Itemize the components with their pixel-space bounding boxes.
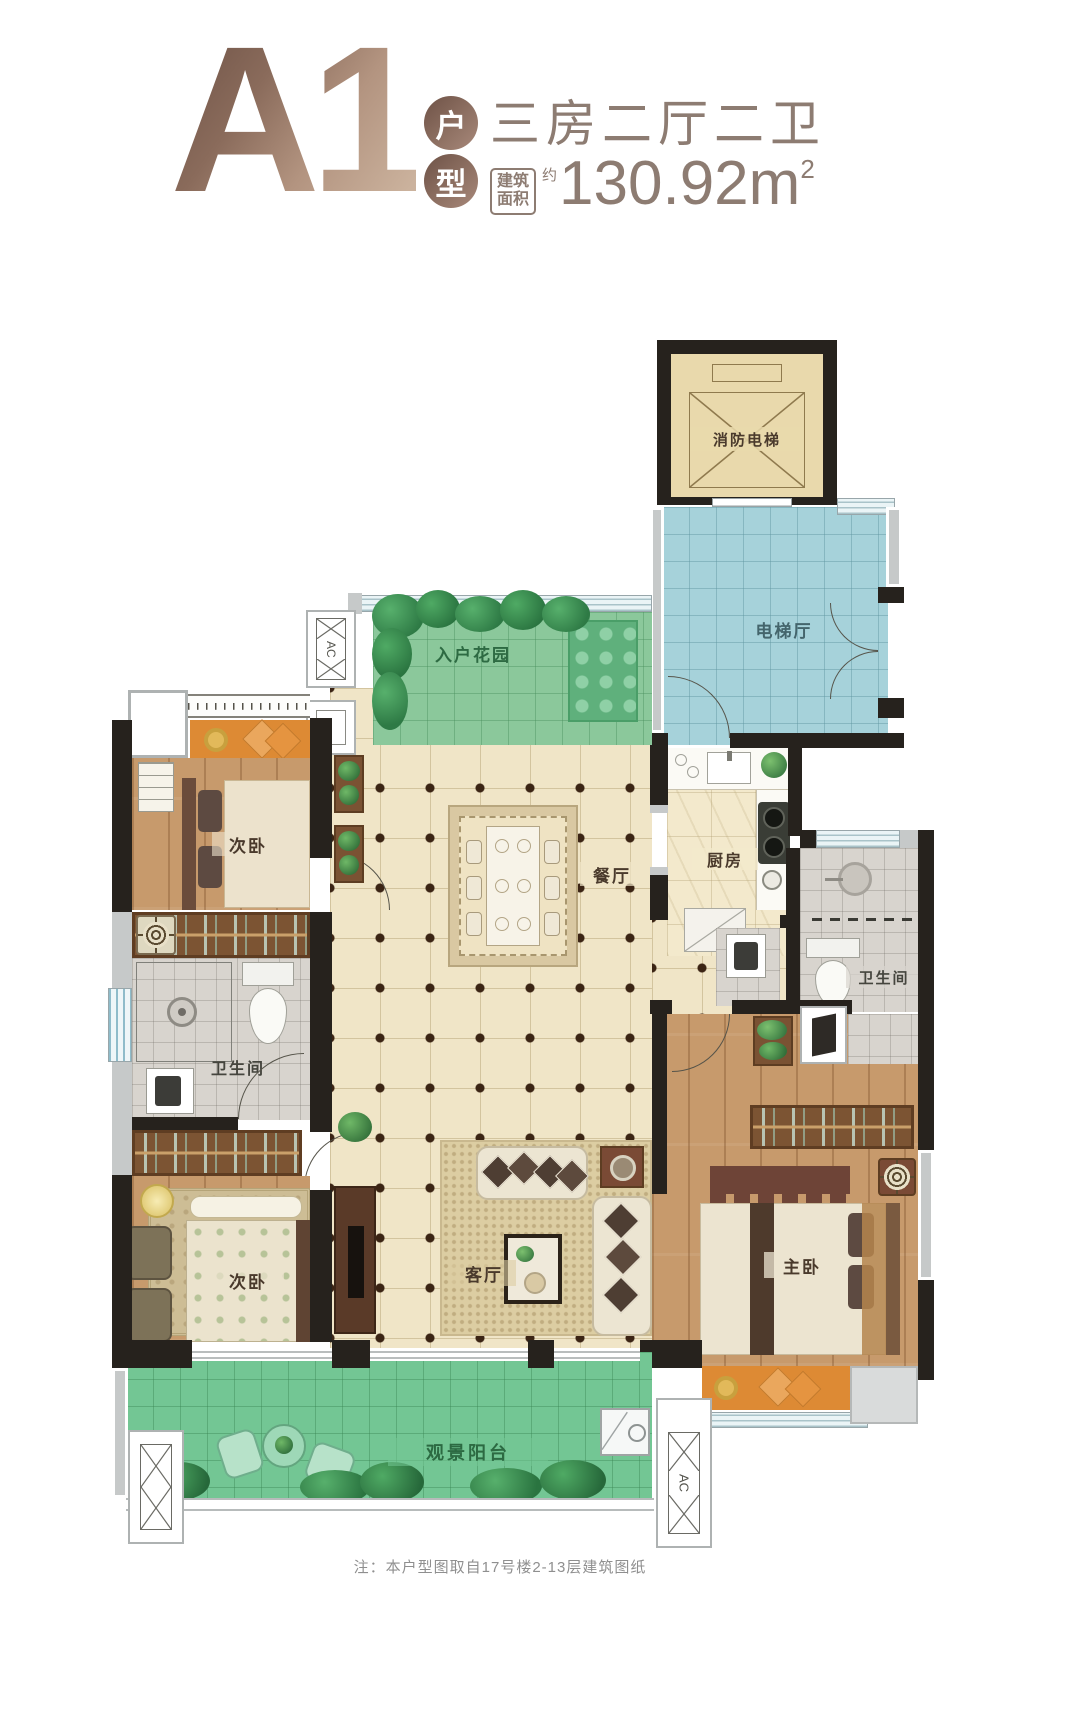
wall-segment <box>112 720 132 912</box>
garden-foliage <box>500 590 546 630</box>
corner-niche <box>128 690 188 758</box>
living-room-label: 客厅 <box>452 1260 516 1286</box>
dish-icon <box>687 766 699 778</box>
hall-west-wall <box>650 507 664 733</box>
dish-icon <box>675 754 687 766</box>
sofa-corner <box>592 1196 652 1336</box>
compass-decor-icon <box>136 915 176 955</box>
vanity <box>146 1068 194 1114</box>
garden-foliage <box>416 590 460 628</box>
planter <box>334 755 364 813</box>
dining-chair <box>466 840 482 864</box>
bed-headboard <box>296 1220 310 1342</box>
table-plant <box>516 1246 534 1262</box>
plate <box>495 879 509 893</box>
ac-x-icon <box>141 1487 171 1529</box>
plate <box>517 879 531 893</box>
wall-segment <box>310 912 332 1132</box>
plate <box>517 917 531 931</box>
wall-segment <box>112 1175 132 1343</box>
fire-elevator-shaft: 消防电梯 <box>689 392 805 488</box>
wall-segment <box>732 1000 788 1014</box>
wall-segment <box>788 748 802 836</box>
plate <box>495 839 509 853</box>
ac-x-icon <box>317 619 345 639</box>
kitchen-plant <box>761 752 787 778</box>
wall-segment <box>310 718 332 858</box>
sofa-pillow <box>481 1155 515 1189</box>
floor-lamp <box>140 1184 174 1218</box>
bay-round-cushion <box>204 728 228 752</box>
bed-runner <box>750 1203 774 1355</box>
kitchen-bowl <box>762 870 782 890</box>
plant <box>757 1020 787 1040</box>
hall-east-frame <box>886 507 902 587</box>
bathroom-right-label: 卫生间 <box>846 966 922 988</box>
ac-unit <box>140 1444 172 1530</box>
faucet-icon <box>727 751 732 761</box>
entry-garden-label: 入户花园 <box>408 640 538 666</box>
washing-machine <box>600 1408 650 1456</box>
wall-segment <box>786 848 800 1012</box>
plate <box>495 917 509 931</box>
wall-segment <box>800 830 816 848</box>
bed-bench-tufts <box>710 1194 850 1203</box>
bay-cushion <box>785 1371 822 1408</box>
shower-separator <box>812 918 912 921</box>
window-sill <box>554 1348 640 1361</box>
tray-icon <box>610 1155 636 1181</box>
plant <box>339 785 359 805</box>
ac-unit: AC <box>316 618 346 680</box>
master-bedroom-label: 主卧 <box>764 1252 840 1278</box>
sofa-pillow <box>603 1277 640 1314</box>
burner-icon <box>763 807 785 829</box>
side-table <box>600 1146 644 1188</box>
plant-rack <box>753 1016 793 1066</box>
footnote: 注：本户型图取自17号楼2-13层建筑图纸 <box>0 1556 1000 1577</box>
ac-unit: AC <box>668 1432 700 1534</box>
bed <box>700 1203 900 1355</box>
nightstand-decor-icon <box>878 1158 916 1196</box>
wall-frame <box>112 1062 132 1175</box>
ac-x-icon <box>317 659 345 679</box>
dining-chair <box>544 840 560 864</box>
door-leaf-icon <box>812 1013 836 1056</box>
balcony-label: 观景阳台 <box>388 1438 548 1466</box>
elevator-hall-label: 电梯厅 <box>724 616 844 642</box>
planter <box>334 825 364 883</box>
balcony-left-edge <box>112 1368 128 1498</box>
toilet <box>242 962 294 1050</box>
wall-segment <box>878 587 904 603</box>
dining-chair <box>466 912 482 936</box>
bed-headboard <box>886 1203 900 1355</box>
wall-frame <box>112 912 132 988</box>
wall-segment <box>918 830 934 1150</box>
door-jamb <box>650 805 668 813</box>
vanity <box>726 934 766 978</box>
fire-elevator-counterweight <box>712 364 782 382</box>
dining-chair <box>466 876 482 900</box>
wall-segment <box>650 875 668 920</box>
dining-table <box>486 826 540 946</box>
balcony-table <box>262 1424 306 1468</box>
wall-segment <box>650 1000 672 1014</box>
window-sill <box>370 1348 528 1361</box>
bedroom-top-label: 次卧 <box>212 832 284 856</box>
tv-screen <box>348 1226 364 1298</box>
window-band <box>108 988 132 1062</box>
plant <box>338 761 360 781</box>
dining-chair <box>544 876 560 900</box>
balcony-foliage <box>540 1460 606 1500</box>
ac-label: AC <box>325 641 337 658</box>
wardrobe <box>750 1105 914 1149</box>
door-jamb <box>650 867 668 875</box>
fire-elevator-label: 消防电梯 <box>690 427 804 451</box>
ac-x-icon <box>669 1495 699 1533</box>
fire-elevator: 消防电梯 <box>657 340 837 505</box>
dresser <box>138 762 174 812</box>
wall-segment <box>528 1340 554 1368</box>
sofa-pillow <box>555 1159 589 1193</box>
balcony-foliage <box>360 1462 424 1502</box>
wall-segment <box>112 1340 192 1368</box>
wall-segment <box>310 1190 332 1342</box>
toilet-tank <box>242 962 294 986</box>
shower-area <box>136 962 232 1062</box>
bay-window-seat <box>702 1366 850 1410</box>
bed-pillow-roll <box>190 1196 302 1218</box>
wall-frame <box>918 1150 934 1280</box>
balcony-railing <box>126 1498 654 1511</box>
armchair <box>126 1288 172 1342</box>
ac-x-icon <box>669 1433 699 1471</box>
exterior-slab <box>850 1366 918 1424</box>
plant <box>339 855 359 875</box>
garden-rug <box>568 620 638 722</box>
wall-segment <box>652 1014 667 1194</box>
sofa-top <box>476 1146 588 1200</box>
bedroom-top-window <box>188 694 310 718</box>
tv-console <box>334 1186 376 1334</box>
sofa-pillow <box>605 1239 642 1276</box>
plate <box>517 839 531 853</box>
bed-pillow <box>198 790 222 832</box>
plant <box>338 1112 372 1142</box>
kitchen-counter-top <box>667 748 790 790</box>
shower-wand <box>825 878 843 881</box>
shower-head-icon <box>838 862 872 896</box>
fire-elevator-cab: 消防电梯 <box>671 354 823 497</box>
garden-foliage <box>455 596 505 632</box>
wall-segment <box>730 733 904 748</box>
armchair <box>126 1226 172 1280</box>
bed-throw <box>862 1203 886 1355</box>
door-frame <box>800 1006 847 1064</box>
shower-drain-center <box>178 1008 186 1016</box>
plant <box>338 831 360 851</box>
window-sill <box>192 1348 332 1361</box>
garden-foliage <box>542 596 590 632</box>
bay-round-cushion <box>714 1376 738 1400</box>
plant <box>759 1042 787 1060</box>
wall-segment <box>132 1117 238 1130</box>
bedroom-bottom-label: 次卧 <box>212 1268 284 1292</box>
toilet-tank <box>806 938 860 958</box>
vanity-basin <box>155 1076 181 1106</box>
garden-foliage <box>372 672 408 730</box>
bed-bench <box>710 1166 850 1194</box>
bed-headboard <box>182 778 196 910</box>
table-tray <box>524 1272 546 1294</box>
ac-x-icon <box>141 1445 171 1487</box>
ac-label: AC <box>678 1474 691 1492</box>
burner-icon <box>763 836 785 858</box>
wall-segment <box>650 745 668 805</box>
window-band <box>816 830 900 848</box>
table-plant <box>275 1436 293 1454</box>
master-entry-tiles <box>848 1014 918 1064</box>
toilet-bowl <box>249 988 287 1044</box>
dining-chair <box>544 912 560 936</box>
floor-plan: 消防电梯 电梯厅 入户花园 AC <box>0 0 1080 1721</box>
kitchen-sink <box>707 752 751 784</box>
wall-segment <box>332 1340 370 1368</box>
vanity-basin <box>734 942 758 970</box>
kitchen-label: 厨房 <box>692 848 758 870</box>
wardrobe <box>132 1130 302 1176</box>
dining-room-label: 餐厅 <box>580 862 644 886</box>
wall-segment <box>878 698 904 718</box>
sofa-pillow <box>603 1203 640 1240</box>
wall-segment <box>918 1280 934 1380</box>
bay-window-seat <box>190 720 310 760</box>
